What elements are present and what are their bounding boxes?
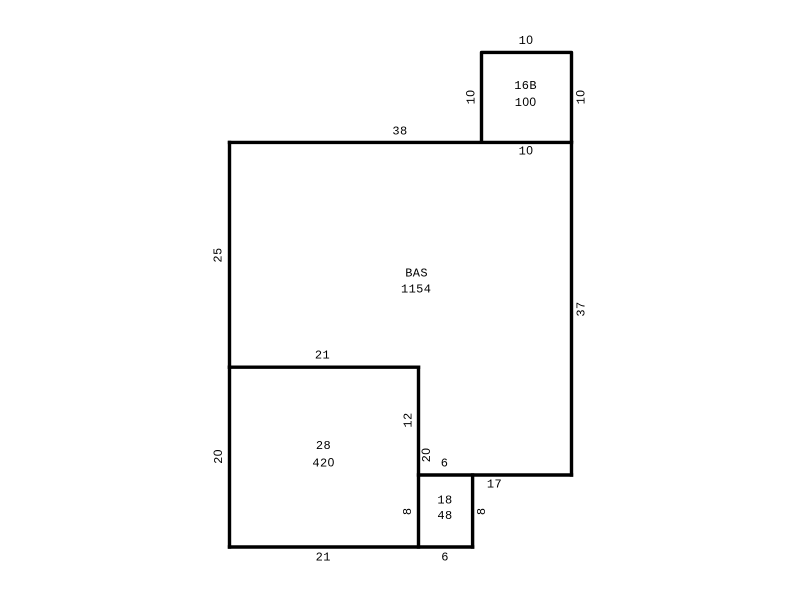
svg-text:20: 20 — [211, 449, 226, 464]
svg-text:37: 37 — [575, 301, 589, 316]
svg-text:6: 6 — [441, 457, 449, 471]
svg-text:8: 8 — [401, 507, 415, 515]
svg-text:38: 38 — [392, 125, 407, 139]
svg-text:10: 10 — [574, 90, 589, 105]
svg-text:17: 17 — [487, 478, 502, 492]
svg-text:16B: 16B — [514, 79, 537, 93]
svg-text:420: 420 — [312, 455, 334, 470]
svg-text:100: 100 — [515, 95, 537, 110]
svg-text:1154: 1154 — [401, 283, 431, 297]
svg-text:8: 8 — [475, 507, 489, 515]
svg-text:12: 12 — [401, 412, 415, 427]
svg-text:10: 10 — [519, 33, 534, 48]
svg-text:20: 20 — [419, 448, 434, 463]
svg-text:21: 21 — [315, 349, 330, 363]
svg-text:BAS: BAS — [405, 266, 428, 280]
svg-text:21: 21 — [316, 551, 331, 565]
svg-text:10: 10 — [519, 144, 534, 159]
svg-text:18: 18 — [437, 494, 452, 508]
svg-text:6: 6 — [441, 551, 449, 565]
svg-text:10: 10 — [464, 90, 479, 105]
svg-text:28: 28 — [316, 439, 331, 453]
svg-text:25: 25 — [212, 247, 226, 262]
svg-text:48: 48 — [437, 509, 452, 523]
